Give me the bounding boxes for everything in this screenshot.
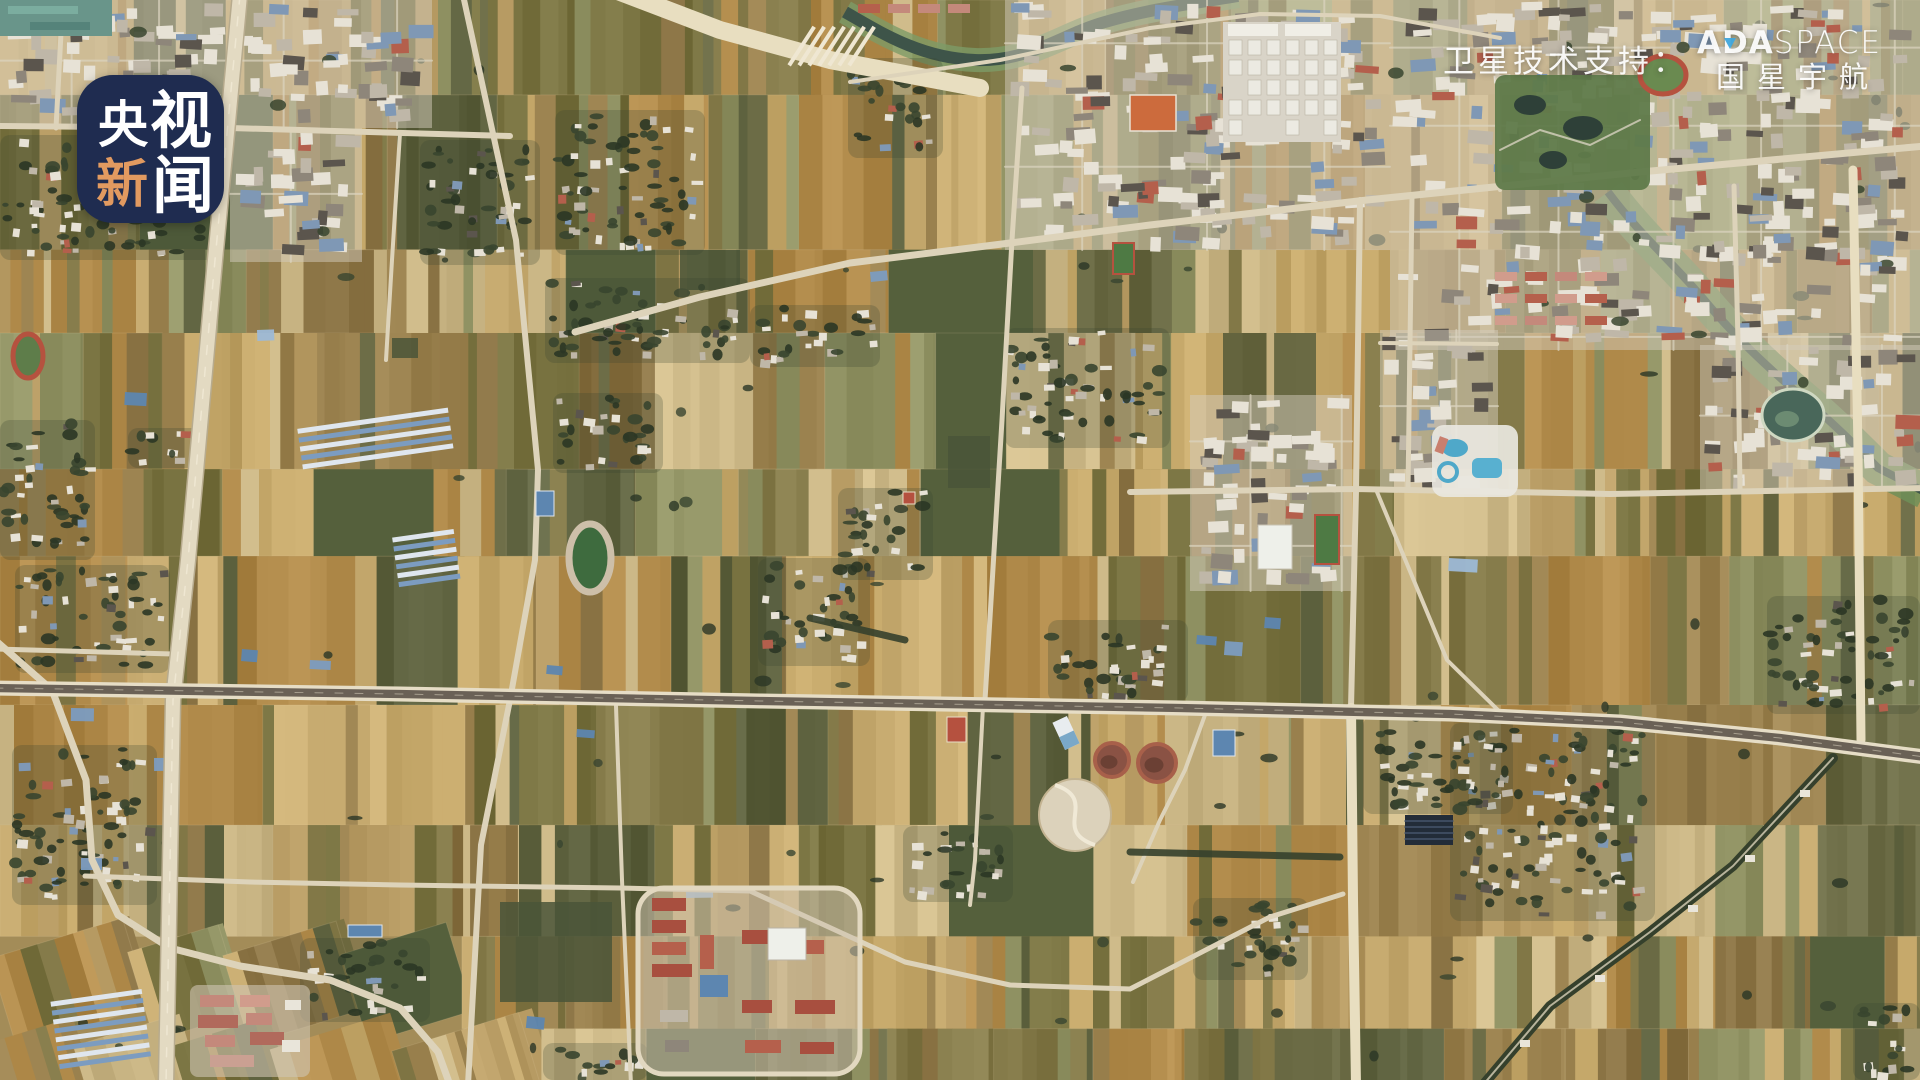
- adaspace-space: SPACE: [1774, 25, 1882, 61]
- logo-char-xin: 新: [96, 159, 148, 211]
- guoxing-yuhang-label: 国星宇航: [1716, 63, 1880, 92]
- logo-char-wen: 闻: [152, 155, 214, 217]
- credit-text: 卫星技术支持：: [1443, 47, 1688, 78]
- adaspace-logo-accent: [1724, 38, 1736, 49]
- cctv-news-logo: 央 视 新 闻: [77, 75, 224, 223]
- logo-char-yang: 央: [98, 100, 148, 150]
- screenshot-root: 央 视 新 闻 卫星技术支持： ADASPACE 国星宇航: [0, 0, 1920, 1080]
- logo-char-shi: 视: [150, 90, 212, 152]
- satellite-map: [0, 0, 1920, 1080]
